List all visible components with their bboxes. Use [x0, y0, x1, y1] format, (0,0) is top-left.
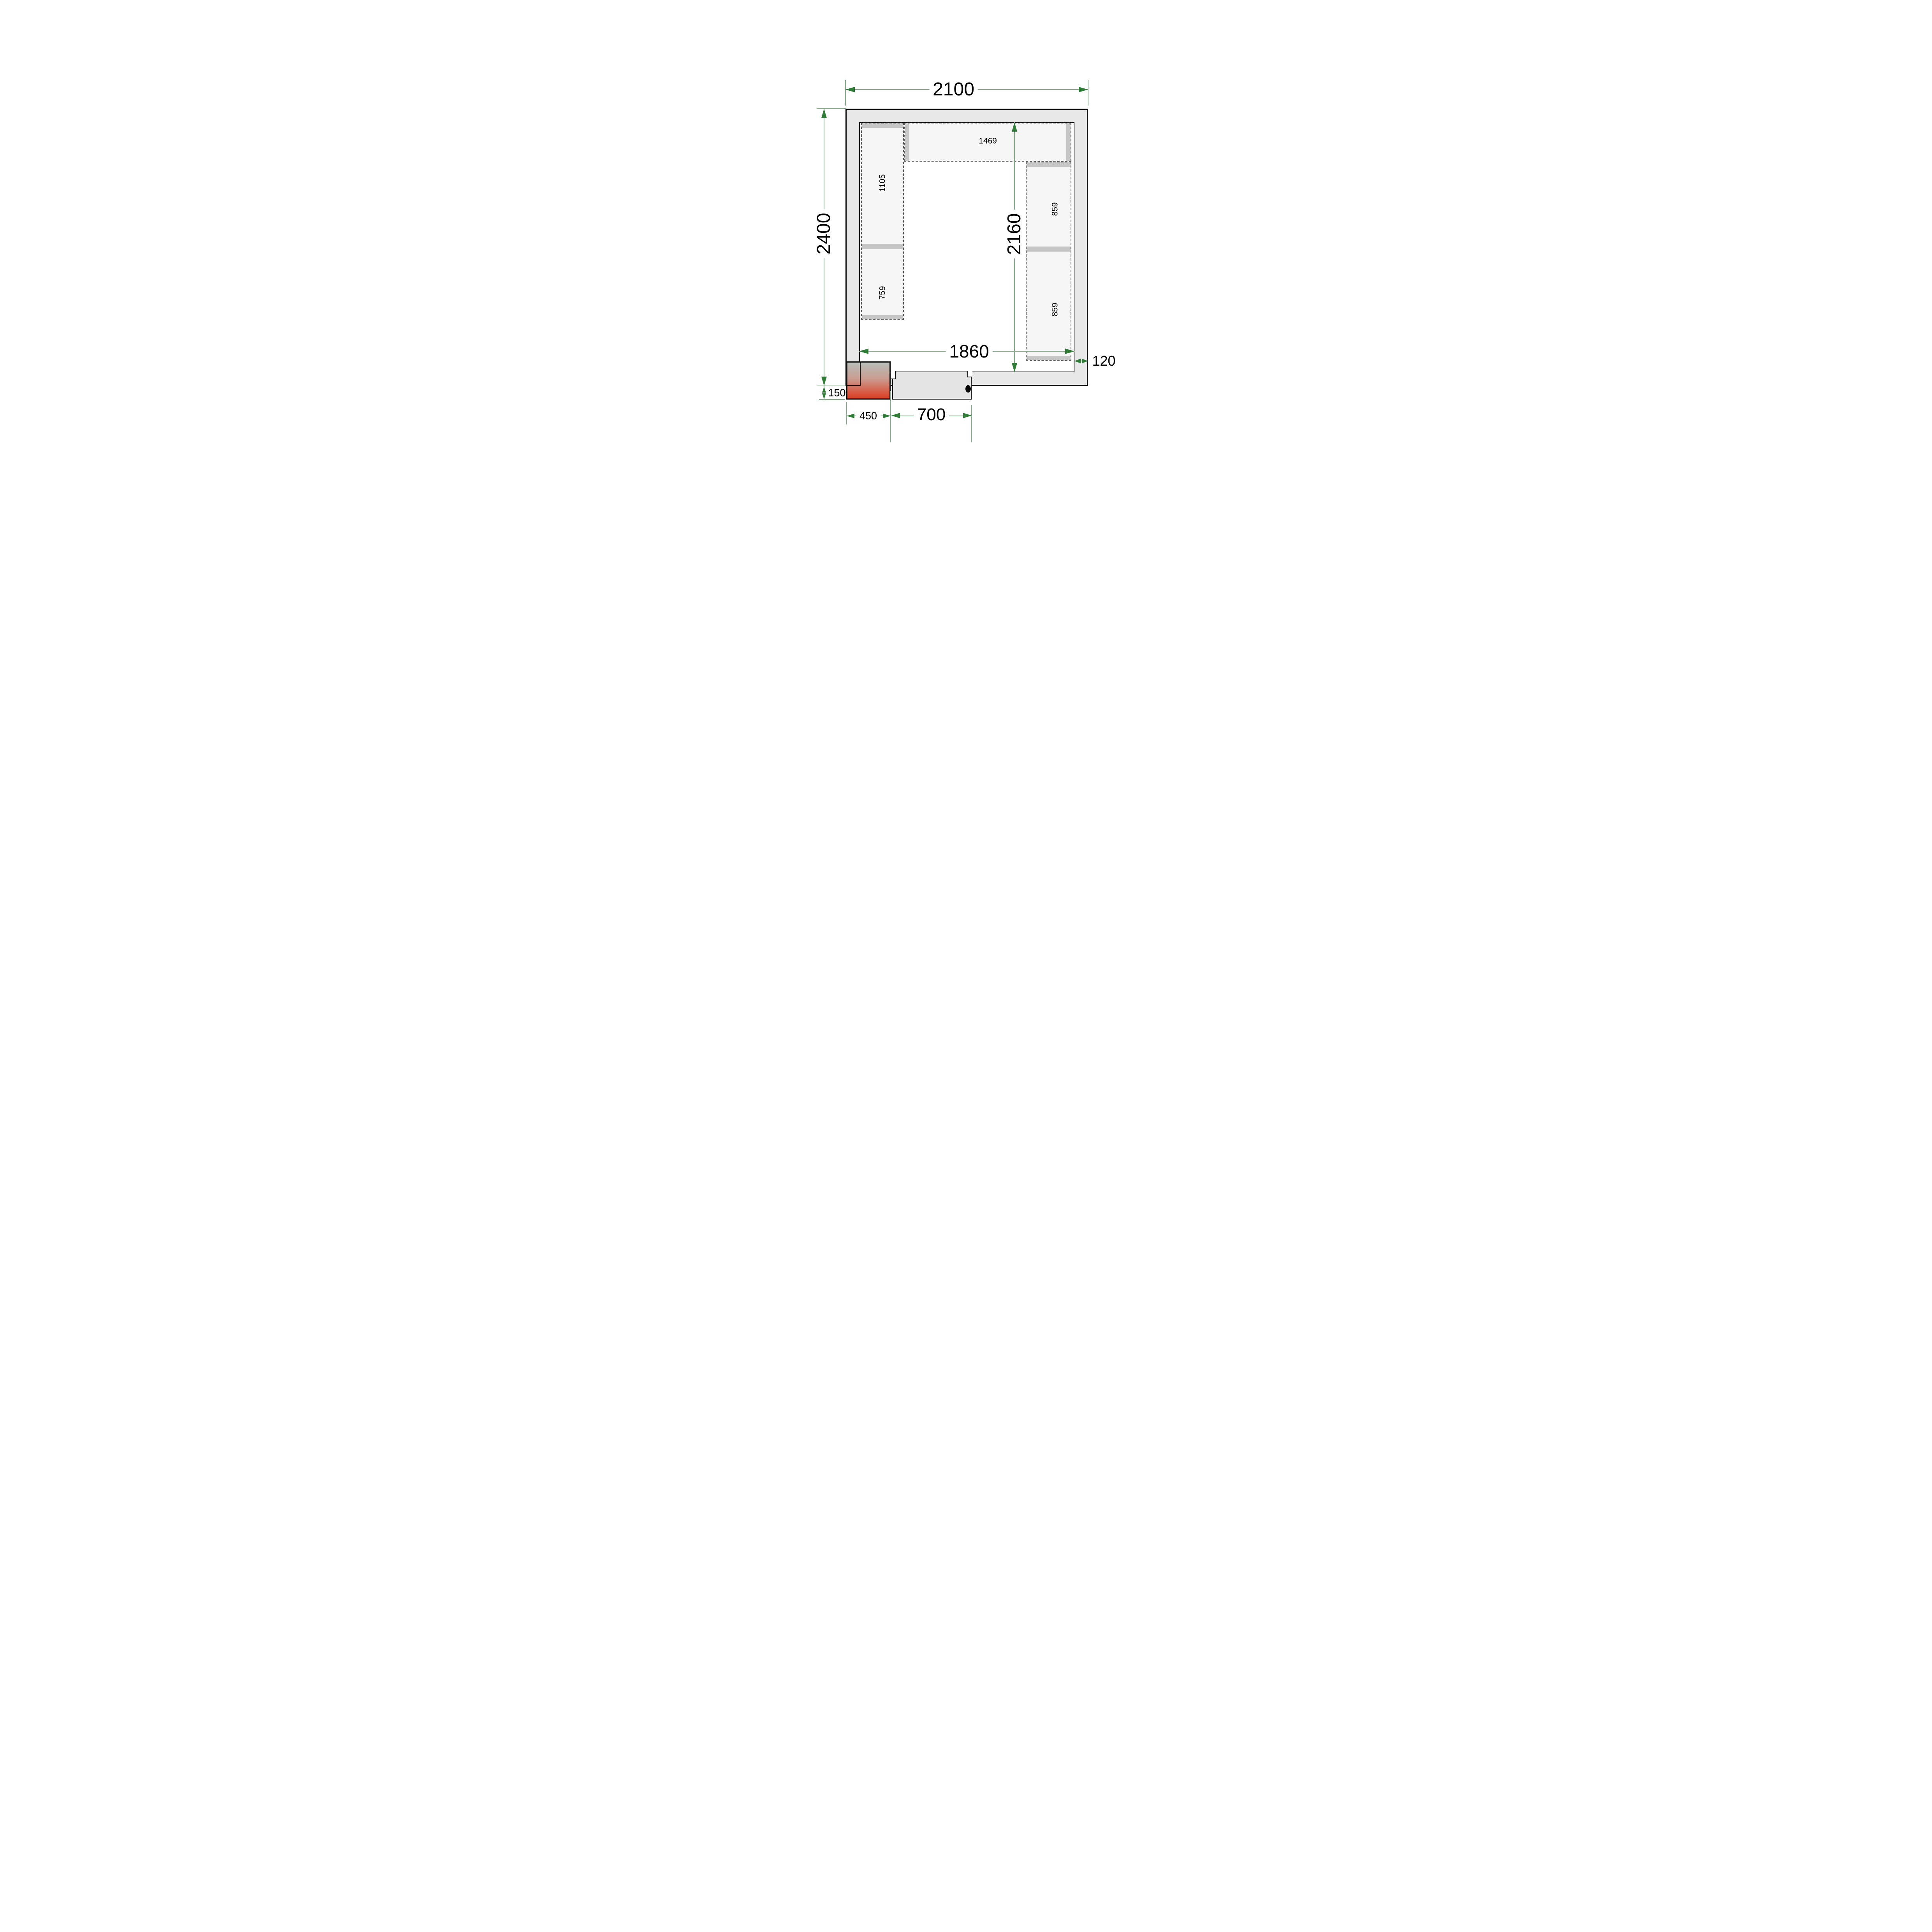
shelf-top-support-left — [905, 123, 909, 161]
shelf-right-support-bottom — [1027, 356, 1071, 360]
door-hinge-dot — [965, 385, 971, 393]
dim-unit-width-label: 450 — [856, 410, 881, 422]
dim-outer-width-arrow-left-icon — [845, 87, 855, 92]
dim-inner-width-arrow-right-icon — [1065, 349, 1074, 354]
dim-inner-height-arrow-bottom-icon — [1012, 363, 1017, 372]
dim-unit-width-arrow-left-icon — [847, 414, 854, 418]
extension-line-outer-width-right — [1088, 80, 1088, 106]
shelf-right-section-1-label: 859 — [1051, 202, 1059, 216]
dim-outer-width-arrow-right-icon — [1079, 87, 1088, 92]
extension-line-outer-width-left — [845, 80, 846, 106]
door-frame-notch-right — [967, 371, 972, 377]
dim-door-width-label: 700 — [914, 405, 949, 424]
dim-protrusion-arrow-top-icon — [822, 387, 826, 393]
shelf-top-support-right — [1066, 123, 1071, 161]
dim-outer-height-arrow-top-icon — [821, 109, 827, 118]
shelf-left-support-top — [862, 123, 903, 128]
dim-door-width-arrow-left-icon — [891, 413, 900, 418]
shelf-left-support-bottom — [862, 315, 903, 319]
shelf-right — [1026, 162, 1071, 361]
dim-protrusion-label: 150 — [828, 388, 846, 398]
dim-protrusion-arrow-bottom-icon — [822, 393, 826, 399]
extension-line-unit-left — [846, 402, 847, 424]
dim-wall-arrow-right-icon — [1082, 359, 1088, 363]
dim-inner-width-arrow-left-icon — [859, 349, 868, 354]
extension-line-door-right — [971, 405, 972, 442]
dim-wall-arrow-left-icon — [1074, 359, 1081, 363]
shelf-right-support-middle — [1027, 247, 1071, 252]
dim-inner-width-label: 1860 — [946, 342, 992, 361]
condenser-wall-corner-vline — [860, 361, 861, 386]
shelf-left-section-2-label: 759 — [878, 286, 886, 299]
floor-plan-canvas: 1105 759 1469 859 859 2100 2400 150 2160… — [725, 0, 1208, 483]
condenser-wall-corner-hline — [846, 385, 861, 386]
dim-wall-label: 120 — [1092, 354, 1116, 368]
condenser-unit — [846, 361, 891, 400]
dim-unit-width-arrow-right-icon — [883, 414, 891, 418]
dim-outer-width-label: 2100 — [929, 79, 978, 100]
shelf-left-section-1-label: 1105 — [878, 174, 886, 192]
door-frame-notch-left — [891, 371, 896, 379]
shelf-left-support-middle — [862, 244, 903, 249]
shelf-right-section-2-label: 859 — [1051, 303, 1059, 316]
door-leaf — [892, 372, 972, 400]
shelf-top-section-label: 1469 — [979, 137, 997, 145]
dim-door-width-arrow-right-icon — [963, 413, 972, 418]
tick-protrusion-bottom — [819, 399, 845, 400]
shelf-right-support-top — [1027, 162, 1071, 167]
dim-inner-height-arrow-top-icon — [1012, 122, 1017, 132]
dim-inner-height-label: 2160 — [1004, 210, 1025, 259]
dim-outer-height-arrow-bottom-icon — [821, 377, 827, 386]
dim-outer-height-label: 2400 — [814, 210, 834, 258]
